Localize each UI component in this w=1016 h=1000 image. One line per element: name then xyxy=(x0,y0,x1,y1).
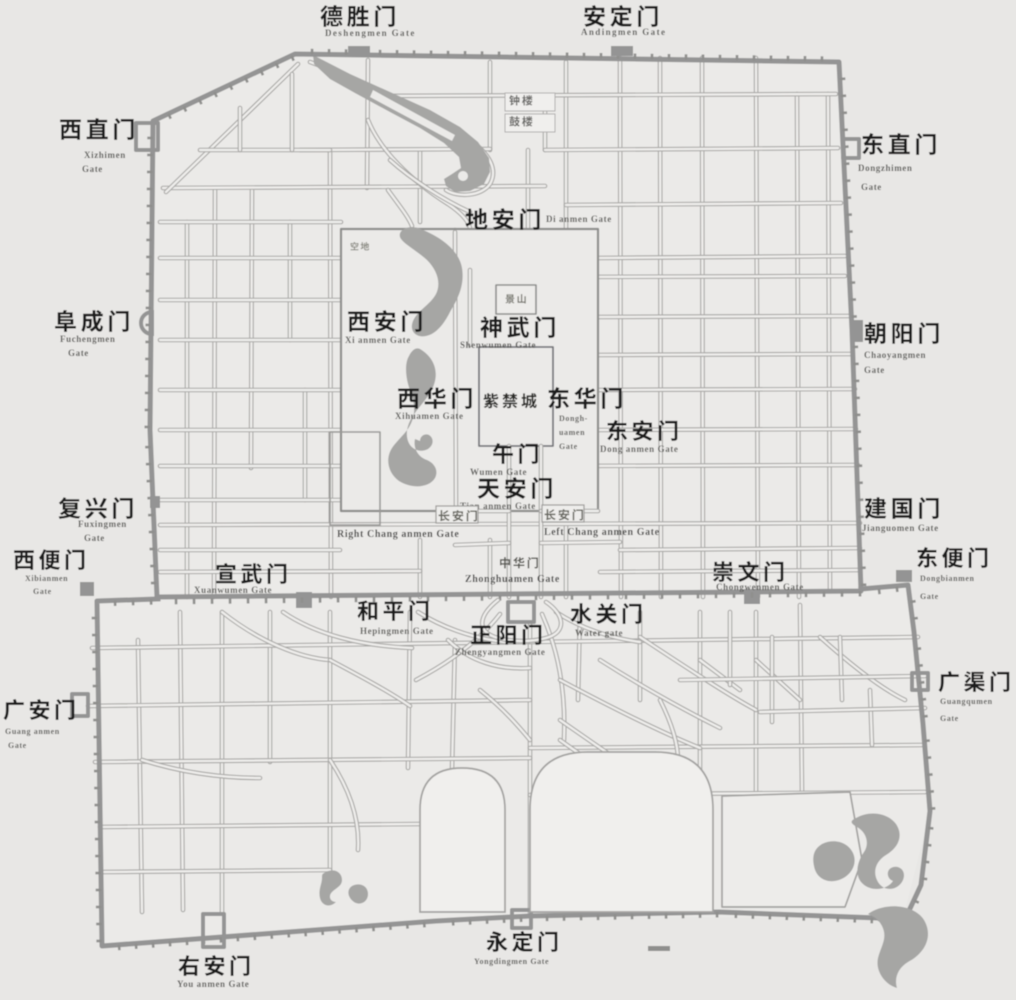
svg-text:Hepingmen Gate: Hepingmen Gate xyxy=(360,626,434,636)
svg-text:Gate: Gate xyxy=(68,348,89,358)
svg-text:Di anmen Gate: Di anmen Gate xyxy=(546,214,612,224)
svg-text:Xibianmen: Xibianmen xyxy=(25,574,68,583)
svg-text:Dongbianmen: Dongbianmen xyxy=(920,574,975,583)
svg-text:Gate: Gate xyxy=(82,164,103,174)
svg-text:Fuxingmen: Fuxingmen xyxy=(78,519,127,529)
svg-text:Andingmen Gate: Andingmen Gate xyxy=(581,27,666,37)
svg-text:Gate: Gate xyxy=(84,533,105,543)
svg-text:Xizhimen: Xizhimen xyxy=(84,150,126,160)
svg-text:Xihuamen Gate: Xihuamen Gate xyxy=(395,411,464,421)
svg-text:Jianguomen Gate: Jianguomen Gate xyxy=(862,523,939,533)
svg-text:Gate: Gate xyxy=(8,741,27,750)
svg-text:Dong anmen Gate: Dong anmen Gate xyxy=(600,444,679,454)
svg-text:Gate: Gate xyxy=(920,592,939,601)
svg-text:Zhonghuamen Gate: Zhonghuamen Gate xyxy=(465,574,560,585)
svg-text:Left Chang anmen Gate: Left Chang anmen Gate xyxy=(544,527,660,538)
svg-text:Fuchengmen: Fuchengmen xyxy=(60,334,116,344)
svg-text:Gate: Gate xyxy=(861,182,882,192)
svg-text:Zhengyangmen Gate: Zhengyangmen Gate xyxy=(455,647,545,657)
svg-text:Gate: Gate xyxy=(864,365,885,375)
svg-text:Dongh-: Dongh- xyxy=(559,414,588,423)
svg-text:uamen: uamen xyxy=(559,428,585,437)
svg-text:Yongdingmen Gate: Yongdingmen Gate xyxy=(474,957,549,966)
svg-text:You anmen Gate: You anmen Gate xyxy=(177,979,249,989)
svg-text:Gate: Gate xyxy=(940,714,959,723)
svg-text:Xi anmen Gate: Xi anmen Gate xyxy=(345,335,411,345)
svg-text:Wumen Gate: Wumen Gate xyxy=(470,467,527,477)
svg-text:Water gate: Water gate xyxy=(575,628,623,638)
svg-text:Gate: Gate xyxy=(33,587,52,596)
svg-text:Chongwenmen Gate: Chongwenmen Gate xyxy=(716,582,804,592)
svg-text:Dongzhimen: Dongzhimen xyxy=(858,163,913,173)
svg-text:Guang anmen: Guang anmen xyxy=(5,727,60,736)
svg-text:Gate: Gate xyxy=(559,442,578,451)
svg-text:Shenwumen Gate: Shenwumen Gate xyxy=(460,340,536,350)
svg-text:Guangqumen: Guangqumen xyxy=(940,697,993,706)
svg-text:Xuanwumen Gate: Xuanwumen Gate xyxy=(194,585,272,595)
svg-text:Chaoyangmen: Chaoyangmen xyxy=(864,350,926,360)
svg-text:Right Chang anmen Gate: Right Chang anmen Gate xyxy=(337,529,459,540)
svg-text:Deshengmen Gate: Deshengmen Gate xyxy=(325,28,416,38)
